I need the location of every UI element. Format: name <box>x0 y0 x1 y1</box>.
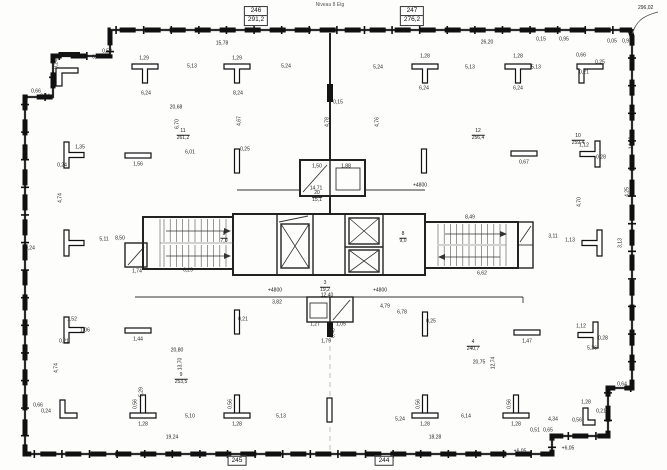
dimension-label: 0,21 <box>238 318 248 323</box>
dimension-label: 0,05 <box>607 40 617 45</box>
dimension-label: 1,52 <box>67 318 77 323</box>
dimension-label: 0,24 <box>57 164 67 169</box>
dimension-label: 1,56 <box>133 163 143 168</box>
stair-left <box>143 217 233 269</box>
dimension-label: 5,24 <box>373 66 383 71</box>
dimension-label: 1,74 <box>132 270 142 275</box>
dimension-label: 1,28 <box>581 401 591 406</box>
dimension-label: 5,26 <box>587 347 597 352</box>
dimension-label: 0,15 <box>333 101 343 106</box>
area-fraction-label: 4240,7 <box>467 340 480 353</box>
dimension-label: 4,79 <box>380 305 390 310</box>
dimension-label: 0,67 <box>519 161 529 166</box>
dimension-label: 3,11 <box>548 235 557 240</box>
dimension-label: 8,50 <box>115 237 125 242</box>
dimension-label: 1,13 <box>565 239 575 244</box>
dimension-label: 4,76 <box>376 117 381 127</box>
dimension-label: +6,05 <box>562 447 575 452</box>
area-fraction-label: 87,0 <box>221 232 228 245</box>
dimension-label: 0,95 <box>559 38 569 43</box>
drawing-title: Niveau 8 Etg <box>316 2 345 8</box>
dimension-label: 5,13 <box>465 66 475 71</box>
dimension-label: 1,29 <box>232 57 242 62</box>
dimension-label: 0,51 <box>530 429 540 434</box>
dimension-label: 6,24 <box>419 87 429 92</box>
area-fraction-label: 2015,1 <box>312 191 322 204</box>
dimension-label: 5,11 <box>99 238 108 243</box>
area-fraction-label: 319,2 <box>320 281 330 294</box>
dimension-label: 5,29 <box>140 387 145 397</box>
dimension-label: 0,56 <box>134 399 139 409</box>
outer-wall <box>25 12 658 454</box>
dimension-label: 1,05 <box>336 323 346 328</box>
dimension-label: 1,12 <box>579 144 589 149</box>
dimension-label: 20,75 <box>473 361 486 366</box>
dimension-label: 20,80 <box>171 349 184 354</box>
dimension-label: +4800 <box>373 289 387 294</box>
floorplan-page: Niveau 8 Etg 296,02 246291,2247276,22452… <box>0 0 667 470</box>
dimension-label: 0,56 <box>508 399 513 409</box>
dimension-label: 6,01 <box>185 151 195 156</box>
dimension-label: 0,24 <box>25 247 35 252</box>
dimension-label: 5,13 <box>531 66 541 71</box>
dimension-label: 18,28 <box>429 436 442 441</box>
dimension-label: 8,49 <box>465 216 475 221</box>
dimension-label: 1,44 <box>133 338 143 343</box>
dimension-label: 0,64 <box>617 383 627 388</box>
dimension-label: 0,87 <box>92 56 102 61</box>
dimension-label: 3,82 <box>272 301 282 306</box>
room-tag: 244 <box>375 456 394 466</box>
area-fraction-label: 11261,2 <box>177 129 190 142</box>
dimension-label: 1,28 <box>138 423 148 428</box>
dimension-label: 1,88 <box>341 165 351 170</box>
dimension-label: 8,24 <box>233 92 243 97</box>
dimension-label: 26,20 <box>481 41 494 46</box>
dimension-label: 1,79 <box>321 340 331 345</box>
room-tag: 245 <box>228 456 247 466</box>
stair-right <box>425 222 518 268</box>
dimension-label: 14,71 <box>310 187 323 192</box>
dimension-label: 20,68 <box>170 106 183 111</box>
dimension-label: 4,74 <box>55 363 60 373</box>
dimension-label: 4,25 <box>626 187 631 197</box>
dimension-label: 0,66 <box>576 54 586 59</box>
dimension-label: 6,70 <box>176 119 181 129</box>
dimension-label: 0,25 <box>595 61 605 66</box>
dimension-label: 15,78 <box>216 42 229 47</box>
dimension-label: 13,70 <box>179 358 184 371</box>
dimension-label: 1,27 <box>310 323 320 328</box>
dimension-label: 0,15 <box>536 38 546 43</box>
dimension-label: 5,24 <box>395 418 405 423</box>
dimension-label: 6,24 <box>141 92 151 97</box>
dimension-label: 14,28 <box>630 137 635 150</box>
dimension-label: 1,06 <box>80 329 90 334</box>
dimension-label: 0,24 <box>40 95 50 100</box>
dimension-label: 0,48 <box>332 328 337 338</box>
dimension-label: 5,10 <box>185 415 195 420</box>
room-tag: 247276,2 <box>400 6 424 26</box>
dimension-label: 0,25 <box>240 148 250 153</box>
dimension-label: 4,70 <box>578 197 583 207</box>
dimension-label: 12,40 <box>321 294 334 299</box>
dimension-label: 12,74 <box>492 357 497 370</box>
dimension-label: 1,28 <box>232 423 242 428</box>
dimension-label: 0,24 <box>41 410 51 415</box>
dimension-label: 6,62 <box>477 272 487 277</box>
dimension-label: 5,13 <box>276 415 286 420</box>
room-tag: 246291,2 <box>244 6 268 26</box>
dimension-label: 6,14 <box>461 415 471 420</box>
dimension-label: 1,35 <box>75 146 85 151</box>
dimension-label: 0,56 <box>229 399 234 409</box>
dimension-label: 5,24 <box>281 65 291 70</box>
dimension-label: +6,05 <box>514 450 527 455</box>
dimension-label: 5,13 <box>187 65 197 70</box>
dimension-label: 0,28 <box>598 337 608 342</box>
dimension-label: 0,91 <box>622 40 632 45</box>
dimension-label: 1,50 <box>312 165 322 170</box>
dimension-label: 0,28 <box>596 156 606 161</box>
dimension-label: 19,24 <box>166 436 179 441</box>
dimension-label: 4,67 <box>238 116 243 126</box>
dimension-label: 1,12 <box>576 325 586 330</box>
elevator-shafts <box>279 216 379 272</box>
dimension-label: +4800 <box>413 184 427 189</box>
dimension-label: 0,65 <box>543 429 553 434</box>
dimension-label: 6,29 <box>183 269 193 274</box>
dimension-label: 0,56 <box>417 399 422 409</box>
dimension-label: 0,21 <box>59 340 69 345</box>
dimension-label: +4800 <box>268 289 282 294</box>
dimension-label: 0,24 <box>55 59 60 69</box>
dimension-label: 0,53 <box>102 50 112 55</box>
dimension-label: 1,47 <box>522 340 532 345</box>
dimension-label: 4,74 <box>59 193 64 203</box>
dimension-label: 6,85 <box>65 54 75 59</box>
dimension-label: 0,25 <box>426 320 436 325</box>
dimension-label: 1,28 <box>420 55 430 60</box>
dimension-label: 6,24 <box>513 87 523 92</box>
dimension-label: 1,28 <box>513 55 523 60</box>
dimension-label: 4,34 <box>548 418 558 423</box>
dimension-label: 1,28 <box>511 423 521 428</box>
dimension-label: 0,21 <box>579 71 589 76</box>
dimension-label: 0,21 <box>596 410 606 415</box>
dimension-label: 4,78 <box>326 117 331 127</box>
area-fraction-label: 9253,5 <box>175 373 188 386</box>
area-fraction-label: 12256,4 <box>472 129 485 142</box>
corner-dimension: 296,02 <box>638 5 653 11</box>
dimension-label: 1,28 <box>420 423 430 428</box>
dimension-label: 1,29 <box>139 57 149 62</box>
area-fraction-label: 89,0 <box>400 232 407 245</box>
floorplan-svg <box>0 0 667 470</box>
dimension-label: 6,78 <box>397 311 407 316</box>
dimension-label: 0,56 <box>572 419 582 424</box>
center-wall <box>327 33 333 450</box>
dimension-label: 3,13 <box>619 238 624 248</box>
